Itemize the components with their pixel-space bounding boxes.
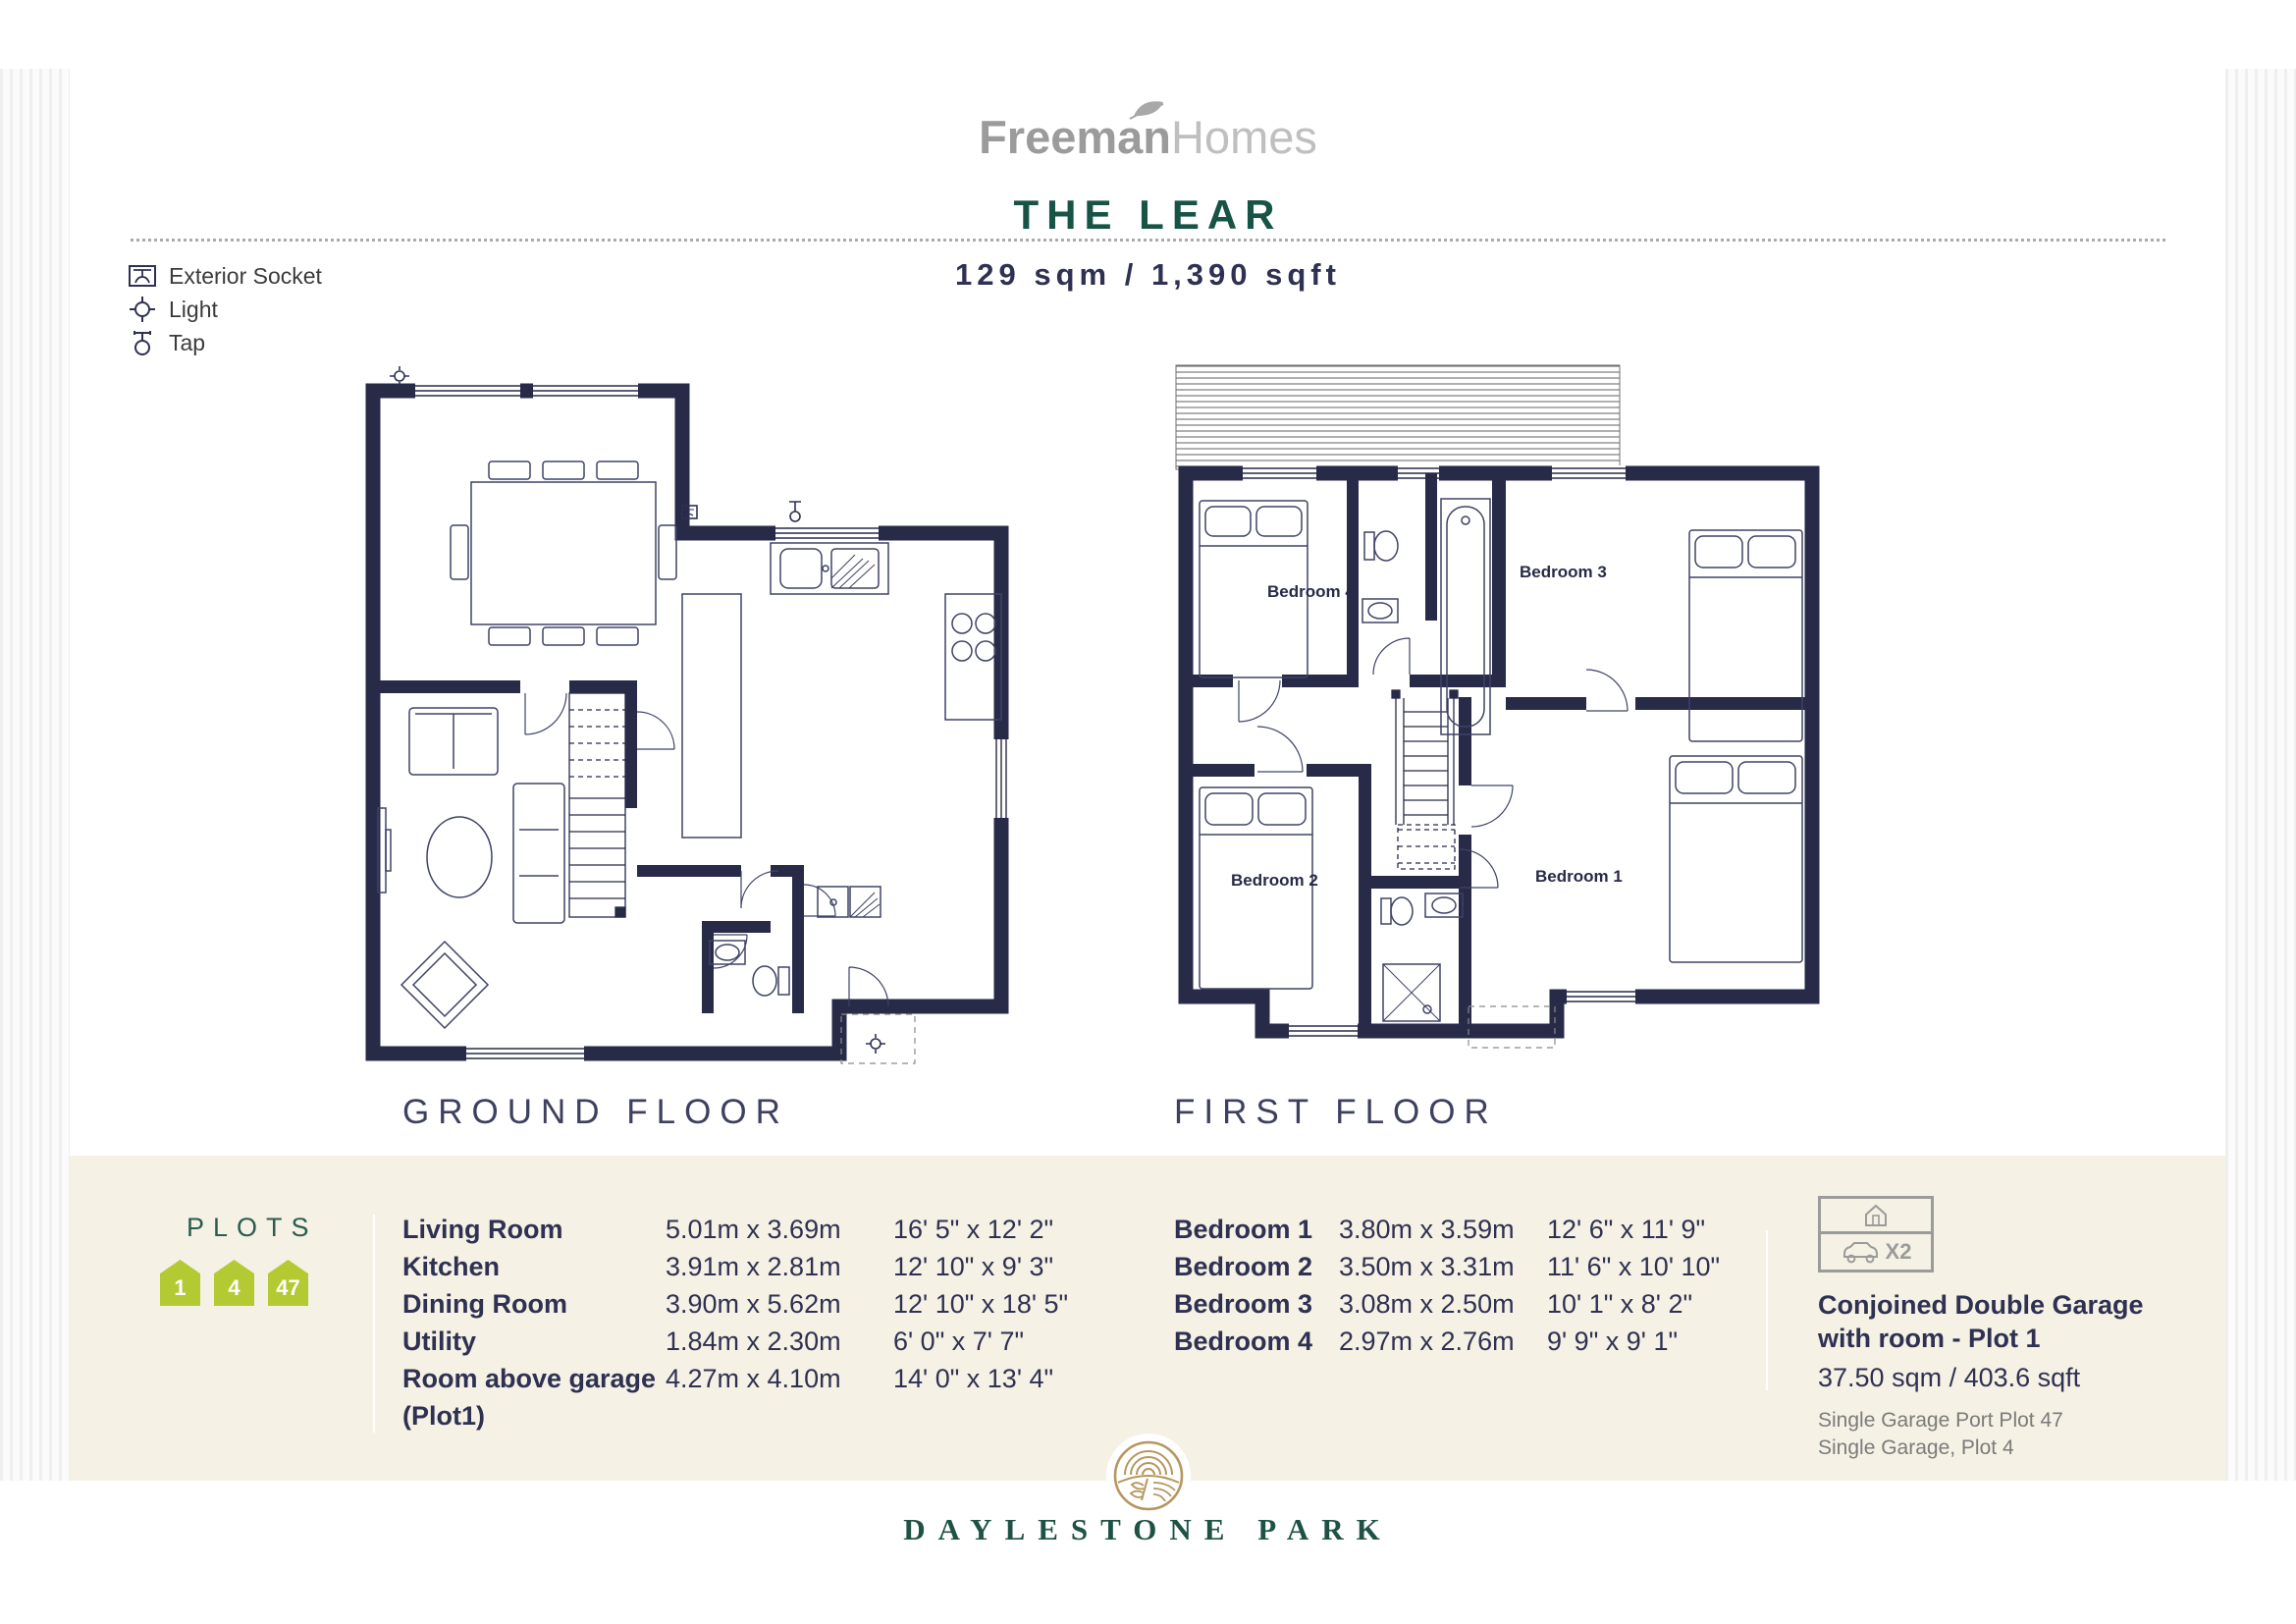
first-floor-caption: FIRST FLOOR: [1174, 1093, 1498, 1132]
room-metric: 3.90m x 5.62m: [666, 1285, 893, 1323]
page-title: THE LEAR: [0, 191, 2296, 239]
rooms-dimensions-table: Living Room 5.01m x 3.69m 16' 5" x 12' 2…: [402, 1211, 1068, 1435]
room-name: Living Room: [402, 1211, 666, 1248]
garage-icon-box: X2: [1818, 1196, 1934, 1272]
garage-note-2: Single Garage, Plot 4: [1818, 1435, 2230, 1462]
legend-item-tap: Tap: [128, 326, 322, 359]
garage-title-line2: with room - Plot 1: [1818, 1322, 2230, 1355]
garage-size: 37.50 sqm / 403.6 sqft: [1818, 1363, 2230, 1393]
room-metric: 3.91m x 2.81m: [666, 1248, 893, 1285]
legend-label: Tap: [169, 330, 205, 356]
room-name: Room above garage: [402, 1360, 666, 1397]
room-metric: 1.84m x 2.30m: [666, 1323, 893, 1360]
room-name-note: (Plot1): [402, 1397, 666, 1435]
bedroom-name: Bedroom 2: [1174, 1248, 1339, 1285]
house-size: 129 sqm / 1,390 sqft: [0, 257, 2296, 293]
bedroom-name: Bedroom 3: [1174, 1285, 1339, 1323]
legend: Exterior Socket Light Tap: [128, 259, 322, 359]
plots-table-divider: [373, 1215, 375, 1433]
bedroom4-label: Bedroom 4: [1267, 582, 1355, 601]
room-imperial: 12' 10" x 18' 5": [893, 1285, 1068, 1323]
room-imperial: 12' 10" x 9' 3": [893, 1248, 1068, 1285]
leaf-icon: [1120, 96, 1175, 122]
room-imperial: 6' 0" x 7' 7": [893, 1323, 1068, 1360]
garage-info: X2 Conjoined Double Garage with room - P…: [1818, 1196, 2230, 1462]
garage-title-line1: Conjoined Double Garage: [1818, 1288, 2230, 1322]
garage-note-1: Single Garage Port Plot 47: [1818, 1407, 2230, 1435]
bedroom-imperial: 12' 6" x 11' 9": [1547, 1211, 1720, 1248]
exterior-socket-icon: [128, 262, 157, 290]
daylestone-emblem-icon: [1104, 1432, 1193, 1520]
bedroom2-label: Bedroom 2: [1231, 871, 1318, 890]
bedrooms-dimensions-table: Bedroom 1 3.80m x 3.59m 12' 6" x 11' 9" …: [1174, 1211, 1720, 1360]
plots-heading: PLOTS: [187, 1213, 318, 1243]
table-garage-divider: [1766, 1230, 1768, 1390]
room-name: Utility: [402, 1323, 666, 1360]
bedroom-metric: 3.08m x 2.50m: [1339, 1285, 1547, 1323]
bedroom-imperial: 9' 9" x 9' 1": [1547, 1323, 1720, 1360]
tap-icon: [128, 329, 157, 356]
bedroom-metric: 3.80m x 3.59m: [1339, 1211, 1547, 1248]
house-icon: [1862, 1203, 1890, 1228]
car-icon: [1841, 1240, 1880, 1264]
bedroom-imperial: 10' 1" x 8' 2": [1547, 1285, 1720, 1323]
bedroom-name: Bedroom 1: [1174, 1211, 1339, 1248]
light-icon: [128, 296, 157, 323]
bedroom-metric: 2.97m x 2.76m: [1339, 1323, 1547, 1360]
floorplan-page: FreemanHomes THE LEAR 129 sqm / 1,390 sq…: [0, 0, 2296, 1624]
room-name: Kitchen: [402, 1248, 666, 1285]
ground-floor-plan: [358, 366, 1016, 1071]
legend-label: Exterior Socket: [169, 263, 322, 290]
room-metric: 4.27m x 4.10m: [666, 1360, 893, 1397]
room-imperial: 14' 0" x 13' 4": [893, 1360, 1068, 1397]
bedroom-metric: 3.50m x 3.31m: [1339, 1248, 1547, 1285]
legend-item-light: Light: [128, 293, 322, 326]
first-floor-plan: Bedroom 4 Bedroom 3 Bedroom 2 Bedroom 1: [1174, 363, 1830, 1070]
legend-label: Light: [169, 297, 218, 323]
dotted-divider: [131, 239, 2165, 242]
development-name: DAYLESTONE PARK: [0, 1512, 2296, 1547]
room-name: Dining Room: [402, 1285, 666, 1323]
room-metric: 5.01m x 3.69m: [666, 1211, 893, 1248]
brand-logo: FreemanHomes: [0, 110, 2296, 164]
bedroom-imperial: 11' 6" x 10' 10": [1547, 1248, 1720, 1285]
bedroom-name: Bedroom 4: [1174, 1323, 1339, 1360]
bedroom3-label: Bedroom 3: [1520, 563, 1607, 581]
bedroom1-label: Bedroom 1: [1535, 867, 1623, 886]
room-imperial: 16' 5" x 12' 2": [893, 1211, 1068, 1248]
garage-multiplier: X2: [1886, 1239, 1912, 1265]
legend-item-exterior-socket: Exterior Socket: [128, 259, 322, 293]
brand-light-text: Homes: [1171, 111, 1317, 163]
ground-floor-caption: GROUND FLOOR: [402, 1093, 789, 1132]
